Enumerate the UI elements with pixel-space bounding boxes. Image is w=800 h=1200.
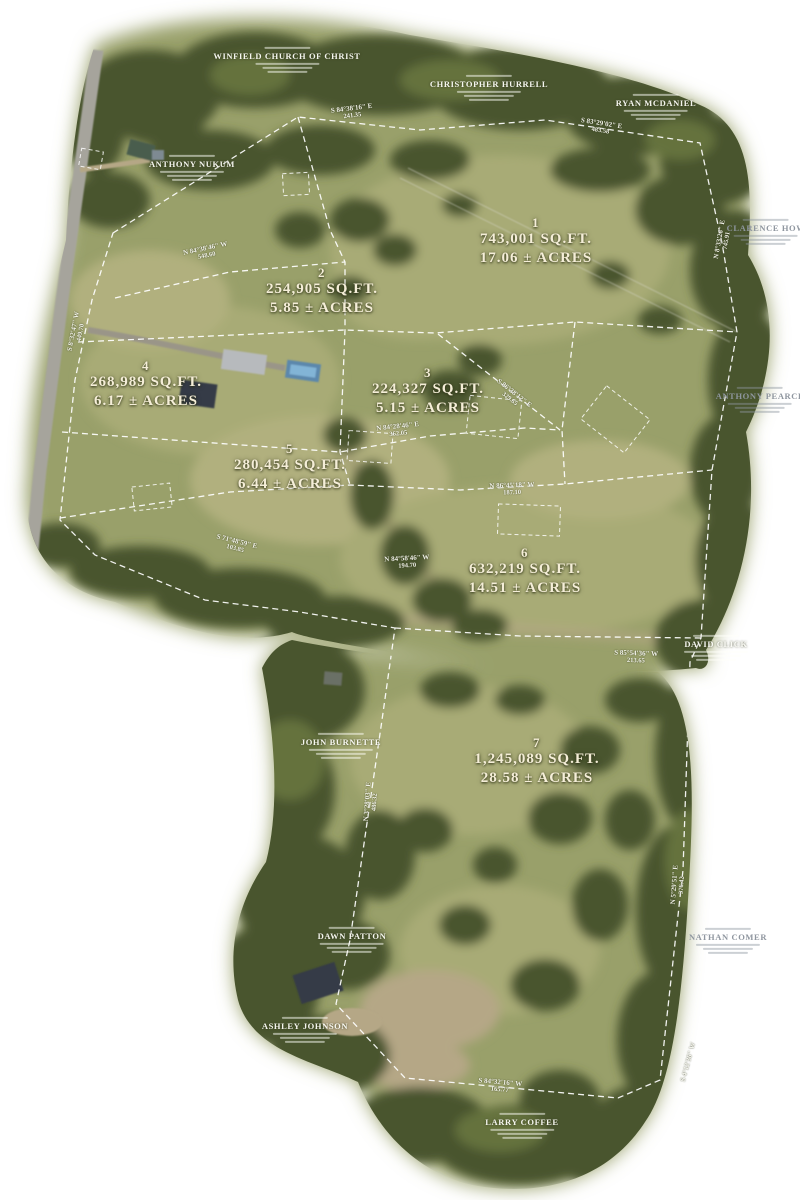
lot4-house — [179, 380, 218, 409]
barn — [323, 671, 342, 686]
bottom-driveway — [322, 1008, 382, 1036]
church-annex — [152, 150, 164, 160]
aerial-photo — [0, 0, 800, 1200]
survey-plat-aerial-map: 1743,001 SQ.FT.17.06 ± ACRES2254,905 SQ.… — [0, 0, 800, 1200]
